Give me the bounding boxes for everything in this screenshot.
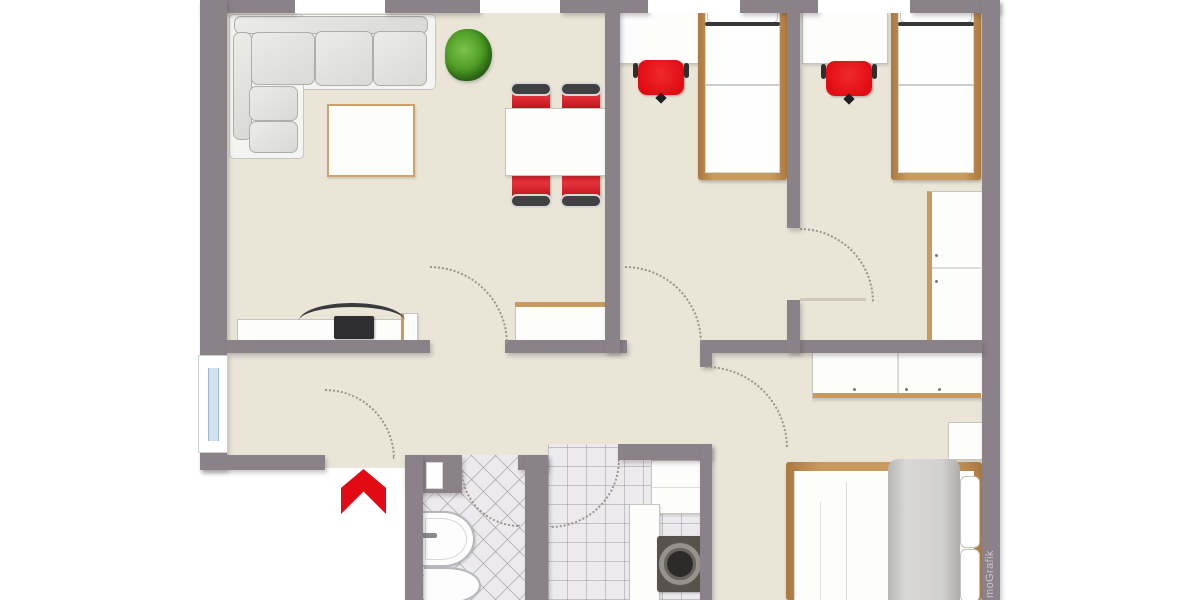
- bed-fold-line: [898, 84, 974, 86]
- dining-table: [505, 108, 610, 176]
- door-leaf-bedroom2: [800, 298, 866, 301]
- desk-chair: [826, 61, 872, 96]
- chair-back: [560, 82, 602, 96]
- wardrobe-row: [812, 352, 984, 399]
- wall-living-bedroom1: [605, 10, 620, 353]
- rolled-duvet: [888, 459, 960, 600]
- faucet-icon: [421, 533, 437, 538]
- coffee-table: [327, 104, 415, 177]
- counter-divider: [652, 487, 701, 488]
- floor-plan: moGrafik: [0, 0, 1200, 600]
- dining-chair: [512, 171, 550, 205]
- wall-top: [560, 0, 648, 13]
- window: [295, 0, 385, 13]
- bed-pillow: [960, 549, 980, 600]
- wardrobe-divider: [932, 267, 981, 269]
- wardrobe-handle: [905, 388, 908, 391]
- sheet-crease: [846, 482, 847, 600]
- wall-bath-left: [405, 455, 423, 600]
- chair-back: [560, 194, 602, 208]
- sideboard: [515, 302, 607, 344]
- wall-hall-bottom: [200, 455, 325, 470]
- sofa-corner-seat: [251, 32, 315, 85]
- duct-niche: [426, 462, 443, 489]
- dining-chair: [562, 171, 600, 205]
- bed-headboard: [898, 22, 974, 26]
- wall-right: [982, 0, 1000, 600]
- desk: [802, 12, 888, 64]
- bed-fold-line: [705, 84, 780, 86]
- wall-master-pillar: [700, 353, 712, 367]
- wall-top: [740, 0, 818, 13]
- bed-sheet: [898, 10, 974, 173]
- bed-pillow: [960, 476, 980, 548]
- wardrobe: [927, 191, 987, 343]
- washing-machine-icon: [657, 536, 702, 592]
- wardrobe-wood-edge: [813, 393, 981, 398]
- desk: [619, 12, 699, 64]
- window: [648, 0, 740, 13]
- nightstand: [948, 422, 984, 460]
- sofa-seat-cushion: [249, 121, 298, 153]
- watermark: moGrafik: [984, 550, 996, 598]
- wardrobe-handle: [853, 388, 856, 391]
- single-bed: [891, 4, 981, 180]
- wall-bath-utility: [525, 455, 548, 600]
- chair-back: [510, 82, 552, 96]
- wall-top: [385, 0, 480, 13]
- chair-back: [510, 194, 552, 208]
- sofa-seat-cushion: [315, 31, 373, 86]
- window-glass: [208, 368, 219, 441]
- single-bed: [698, 4, 787, 180]
- wardrobe-divider: [897, 353, 899, 398]
- wall-utility-master: [700, 444, 712, 600]
- sofa-seat-cushion: [373, 31, 427, 86]
- sheet-crease: [820, 502, 821, 600]
- window: [818, 0, 910, 13]
- bed-sheet: [705, 10, 780, 173]
- bed-headboard: [705, 22, 780, 26]
- sideboard-wood-edge: [515, 302, 605, 307]
- entrance-arrow-icon: [341, 469, 386, 514]
- wall-hall-top: [227, 340, 430, 353]
- wall-utility-top: [618, 444, 712, 460]
- wall-hall-top: [700, 340, 982, 353]
- tall-cabinet: [629, 504, 660, 600]
- wall-bedroom1-bedroom2: [787, 300, 800, 353]
- wardrobe-handle: [935, 280, 938, 283]
- sofa-seat-cushion: [249, 86, 298, 121]
- washer-drum: [659, 543, 701, 585]
- wardrobe-handle: [938, 388, 941, 391]
- wall-bedroom1-bedroom2: [787, 10, 800, 228]
- desk-chair: [638, 60, 684, 95]
- window: [480, 0, 560, 13]
- wardrobe-handle: [935, 254, 938, 257]
